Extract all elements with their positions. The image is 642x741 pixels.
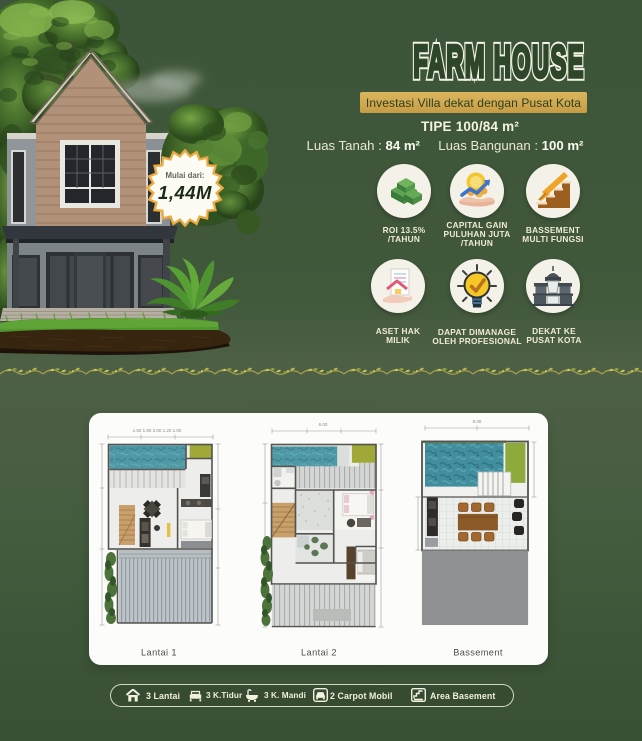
svg-text:6.00: 6.00: [319, 422, 328, 427]
svg-text:FARM HOUSE: FARM HOUSE: [413, 38, 585, 84]
svg-text:1.50 1.50 3.00 1.20 1.00: 1.50 1.50 3.00 1.20 1.00: [133, 428, 182, 433]
svg-text:Lantai 2: Lantai 2: [301, 648, 337, 658]
svg-text:Mulai dari:: Mulai dari:: [166, 171, 205, 180]
svg-text:Bassement: Bassement: [453, 648, 503, 658]
svg-text:Lantai 1: Lantai 1: [141, 648, 177, 658]
svg-text:1,44M: 1,44M: [158, 182, 212, 203]
svg-text:8.00: 8.00: [473, 419, 482, 424]
